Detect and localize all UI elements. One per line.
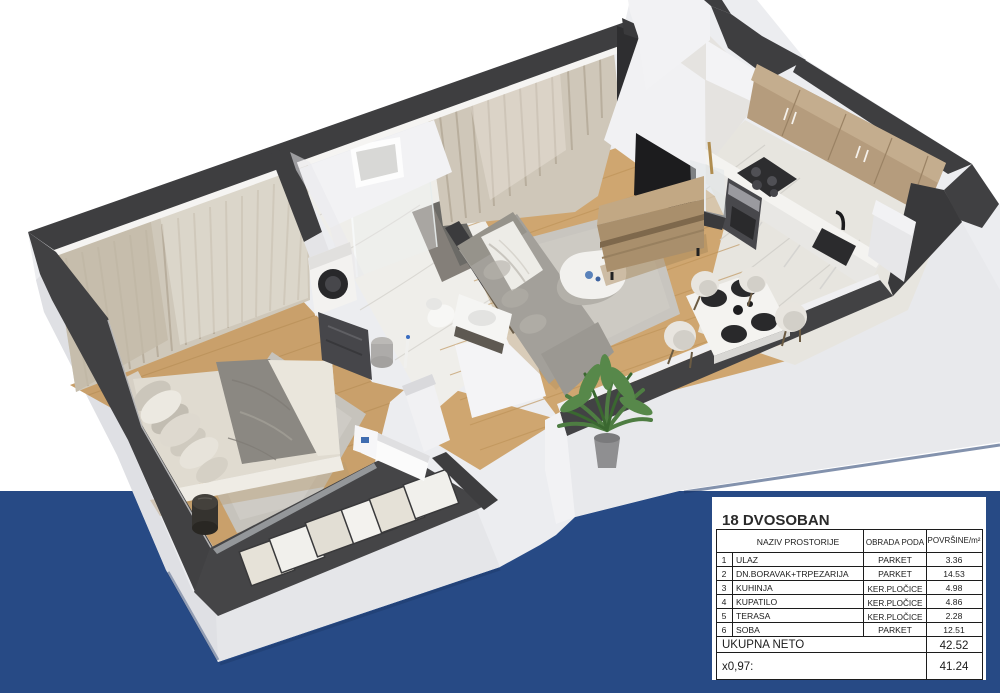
- svg-text:KER.PLOČICE: KER.PLOČICE: [867, 598, 923, 608]
- svg-text:KER.PLOČICE: KER.PLOČICE: [867, 584, 923, 594]
- svg-text:1: 1: [722, 555, 727, 565]
- svg-text:4.86: 4.86: [946, 597, 963, 607]
- svg-text:5: 5: [722, 611, 727, 621]
- svg-text:6: 6: [722, 625, 727, 635]
- svg-text:NAZIV PROSTORIJE: NAZIV PROSTORIJE: [757, 537, 840, 547]
- svg-text:UKUPNA NETO: UKUPNA NETO: [722, 639, 804, 651]
- svg-text:2.28: 2.28: [946, 611, 963, 621]
- svg-text:PARKET: PARKET: [878, 555, 912, 565]
- svg-text:KER.PLOČICE: KER.PLOČICE: [867, 612, 923, 622]
- svg-text:OBRADA PODA: OBRADA PODA: [866, 538, 925, 547]
- svg-text:ULAZ: ULAZ: [736, 555, 758, 565]
- svg-text:3: 3: [722, 583, 727, 593]
- svg-text:4: 4: [722, 597, 727, 607]
- svg-text:SOBA: SOBA: [736, 625, 760, 635]
- svg-text:KUPATILO: KUPATILO: [736, 597, 778, 607]
- svg-text:DN.BORAVAK+TRPEZARIJA: DN.BORAVAK+TRPEZARIJA: [736, 569, 849, 579]
- svg-text:41.24: 41.24: [940, 661, 969, 673]
- svg-text:14.53: 14.53: [943, 569, 965, 579]
- svg-text:PARKET: PARKET: [878, 569, 912, 579]
- svg-text:3.36: 3.36: [946, 555, 963, 565]
- svg-text:POVRŠINE/m²: POVRŠINE/m²: [928, 536, 981, 545]
- svg-text:12.51: 12.51: [943, 625, 965, 635]
- svg-text:4.98: 4.98: [946, 583, 963, 593]
- svg-text:KUHINJA: KUHINJA: [736, 583, 773, 593]
- svg-text:18 DVOSOBAN: 18 DVOSOBAN: [722, 512, 830, 529]
- svg-text:42.52: 42.52: [940, 640, 969, 652]
- svg-text:TERASA: TERASA: [736, 611, 771, 621]
- svg-text:2: 2: [722, 569, 727, 579]
- svg-text:x0,97:: x0,97:: [722, 661, 753, 673]
- svg-text:PARKET: PARKET: [878, 625, 912, 635]
